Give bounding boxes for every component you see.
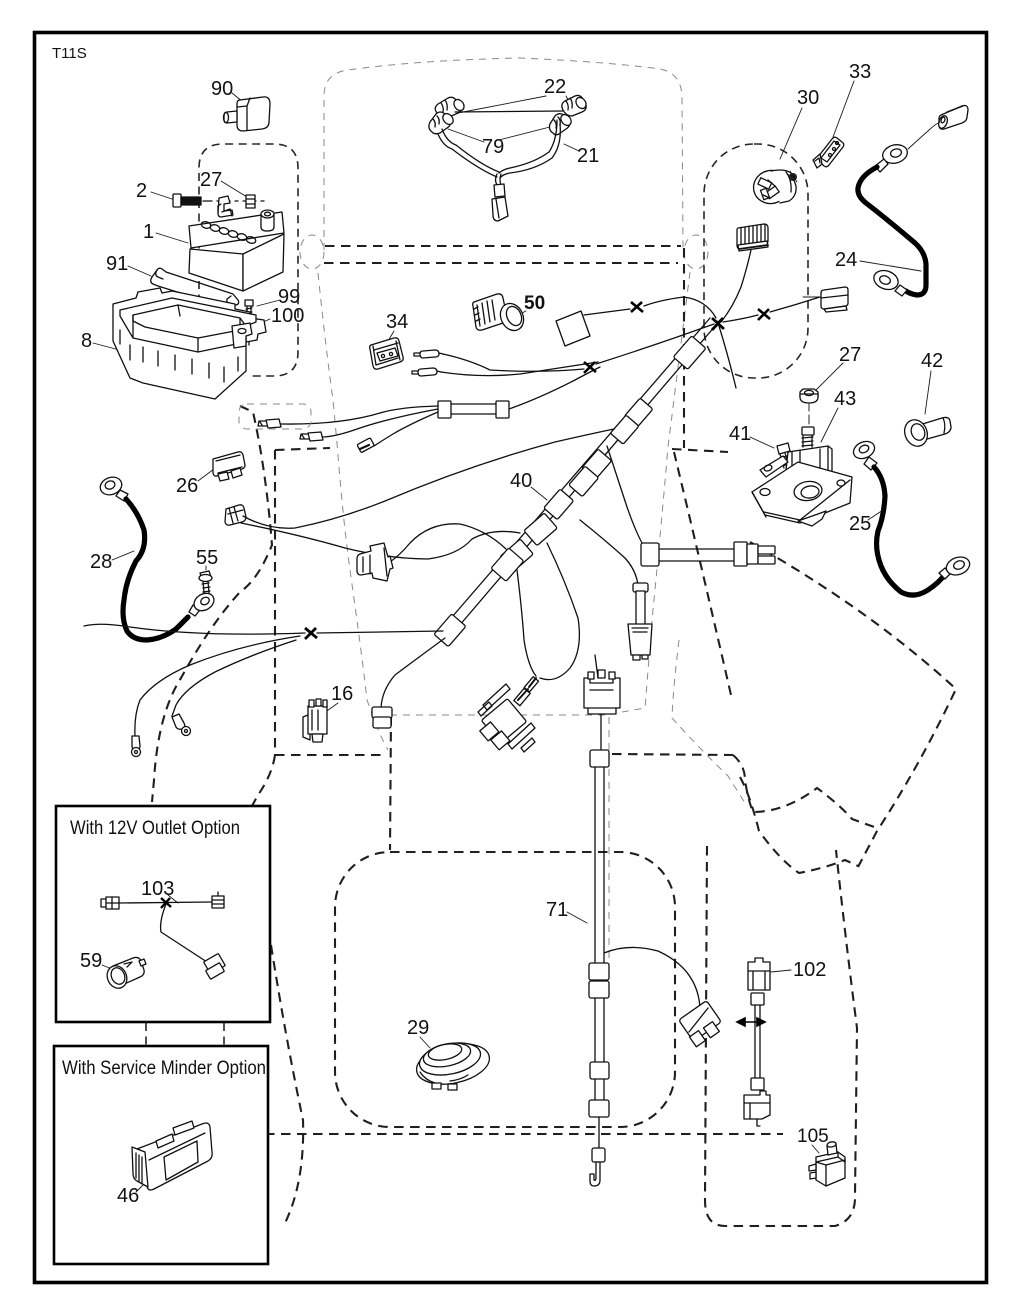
svg-text:100: 100 [271, 305, 304, 327]
svg-text:22: 22 [544, 76, 566, 98]
svg-text:55: 55 [196, 547, 218, 569]
svg-text:71: 71 [546, 899, 568, 921]
svg-text:50: 50 [524, 293, 545, 314]
svg-text:59: 59 [80, 950, 102, 972]
svg-text:46: 46 [117, 1185, 139, 1207]
svg-text:2: 2 [136, 180, 147, 202]
svg-text:102: 102 [793, 959, 826, 981]
svg-text:27: 27 [839, 344, 861, 366]
svg-text:90: 90 [211, 78, 233, 100]
svg-text:With Service Minder Option: With Service Minder Option [62, 1058, 266, 1079]
svg-text:16: 16 [331, 683, 353, 705]
svg-text:With 12V Outlet Option: With 12V Outlet Option [70, 818, 240, 839]
svg-text:103: 103 [141, 878, 174, 900]
svg-text:27: 27 [200, 169, 222, 191]
svg-text:43: 43 [834, 388, 856, 410]
svg-text:30: 30 [797, 87, 819, 109]
svg-text:T11S: T11S [52, 45, 87, 62]
svg-text:25: 25 [849, 513, 871, 535]
svg-text:34: 34 [386, 311, 408, 333]
svg-text:24: 24 [835, 249, 857, 271]
svg-text:40: 40 [510, 470, 532, 492]
svg-text:41: 41 [729, 423, 751, 445]
svg-text:42: 42 [921, 350, 943, 372]
svg-text:33: 33 [849, 61, 871, 83]
svg-text:29: 29 [407, 1017, 429, 1039]
svg-text:105: 105 [797, 1126, 829, 1147]
svg-text:26: 26 [176, 475, 198, 497]
svg-text:21: 21 [577, 145, 599, 167]
svg-text:8: 8 [81, 330, 92, 352]
svg-text:28: 28 [90, 551, 112, 573]
svg-text:91: 91 [106, 253, 128, 275]
svg-text:1: 1 [143, 221, 154, 243]
